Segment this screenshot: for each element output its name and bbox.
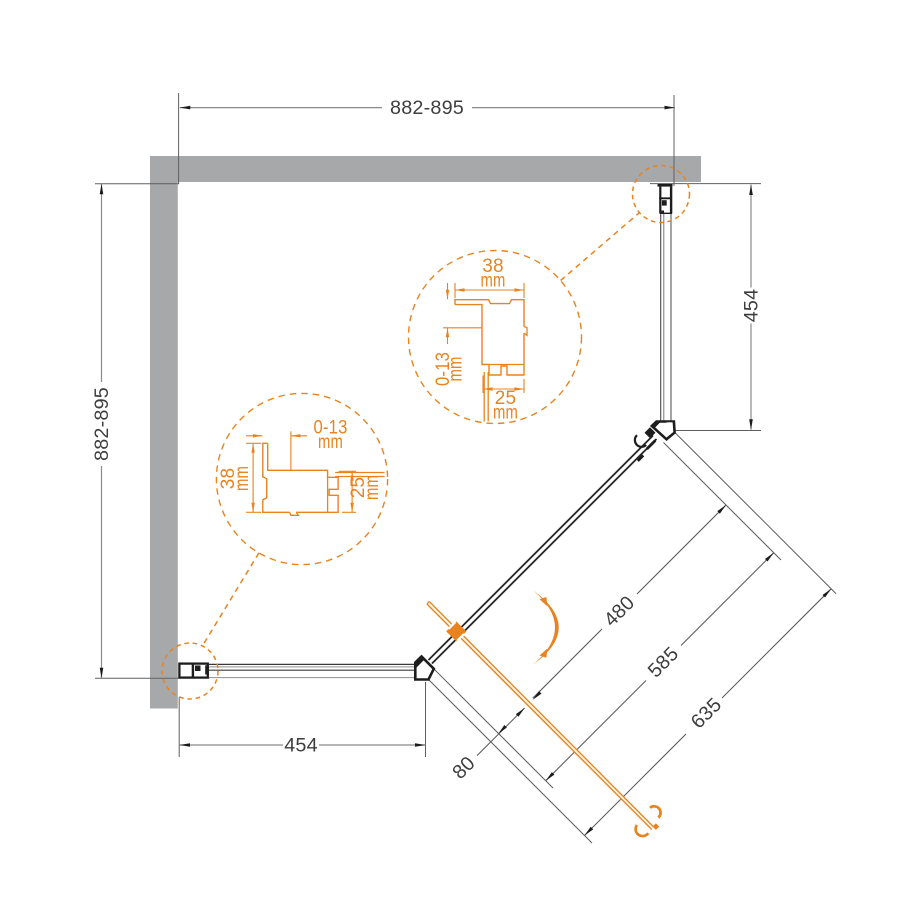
- svg-text:454: 454: [740, 289, 762, 323]
- svg-text:mm: mm: [362, 475, 383, 500]
- svg-text:mm: mm: [446, 357, 467, 382]
- svg-text:882-895: 882-895: [390, 97, 464, 119]
- svg-text:882-895: 882-895: [91, 387, 113, 461]
- svg-text:454: 454: [284, 734, 318, 756]
- svg-text:mm: mm: [232, 466, 253, 491]
- svg-text:mm: mm: [318, 432, 343, 453]
- svg-text:mm: mm: [493, 403, 518, 424]
- svg-text:mm: mm: [481, 271, 506, 292]
